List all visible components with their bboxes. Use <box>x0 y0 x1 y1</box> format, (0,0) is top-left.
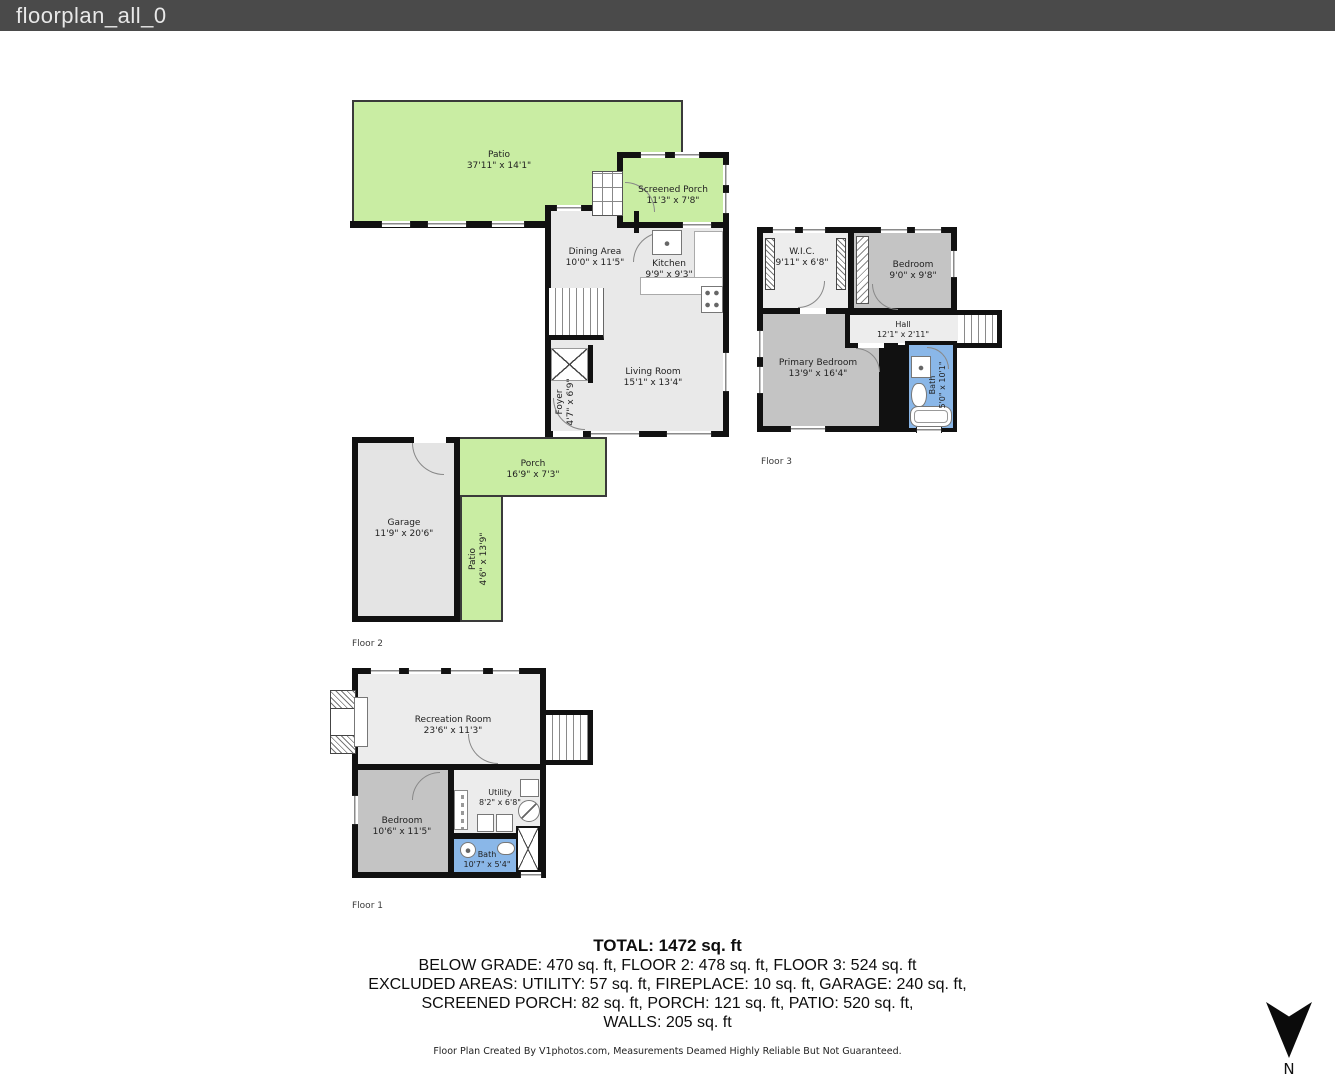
room-name: Screened Porch <box>638 185 708 196</box>
stairs <box>958 310 1002 348</box>
window <box>682 222 712 228</box>
room-label-bath3: Bath 5'0" x 10'1" <box>928 361 948 408</box>
room-name: Patio <box>468 533 479 586</box>
room-dims: 16'9" x 7'3" <box>507 470 560 481</box>
room-label-living: Living Room 15'1" x 13'4" <box>624 367 683 389</box>
room-label-recreation: Recreation Room 23'6" x 11'3" <box>415 715 492 737</box>
room-label-patio: Patio 37'11" x 14'1" <box>467 150 531 172</box>
room-name: Recreation Room <box>415 715 492 726</box>
room-name: Patio <box>467 150 531 161</box>
compass: N <box>1266 1002 1312 1078</box>
floorplan-viewer: floorplan_all_0 <box>0 0 1335 1080</box>
stove-icon <box>701 286 723 313</box>
room-dims: 5'0" x 10'1" <box>938 361 948 408</box>
window <box>914 227 942 233</box>
summary-line: BELOW GRADE: 470 sq. ft, FLOOR 2: 478 sq… <box>0 956 1335 975</box>
window <box>640 152 666 158</box>
window <box>723 352 729 392</box>
window <box>802 227 826 233</box>
room-name: Garage <box>375 518 434 529</box>
washer-icon <box>496 814 513 832</box>
room-name: W.I.C. <box>776 247 829 258</box>
water-heater-icon <box>518 800 540 822</box>
summary-line: SCREENED PORCH: 82 sq. ft, PORCH: 121 sq… <box>0 994 1335 1013</box>
window <box>556 205 582 211</box>
room-name: Living Room <box>624 367 683 378</box>
floor1-tag: Floor 1 <box>352 901 383 911</box>
room-name: Kitchen <box>645 259 692 270</box>
room-name: Utility <box>479 788 521 798</box>
window <box>951 250 957 278</box>
room-dims: 9'9" x 9'3" <box>645 270 692 281</box>
room-dims: 4'7" x 6'9" <box>566 378 577 425</box>
door-opening <box>858 343 884 348</box>
room-dims: 9'0" x 9'8" <box>889 271 936 282</box>
north-arrow-icon <box>1266 1002 1312 1058</box>
toilet-icon <box>911 383 927 407</box>
room-label-bedroom1: Bedroom 10'6" x 11'5" <box>373 816 432 838</box>
window <box>492 668 520 674</box>
closet <box>765 238 775 290</box>
credit-line: Floor Plan Created By V1photos.com, Meas… <box>0 1046 1335 1057</box>
hearth <box>354 697 368 747</box>
room-dims: 37'11" x 14'1" <box>467 161 531 172</box>
window <box>408 668 442 674</box>
dryer-icon <box>520 779 539 797</box>
room-label-bedroom3: Bedroom 9'0" x 9'8" <box>889 260 936 282</box>
room-name: Bedroom <box>373 816 432 827</box>
room-dims: 10'0" x 11'5" <box>566 258 625 269</box>
room-dims: 4'6" x 13'9" <box>479 533 490 586</box>
window <box>674 152 700 158</box>
bathtub-icon <box>910 406 952 427</box>
room-dims: 9'11" x 6'8" <box>776 258 829 269</box>
room-name: Primary Bedroom <box>779 358 857 369</box>
room-label-porch: Porch 16'9" x 7'3" <box>507 459 560 481</box>
shower-icon <box>516 826 540 872</box>
door-opening <box>800 308 826 314</box>
stoop-steps <box>592 171 623 216</box>
stairs <box>549 288 604 340</box>
window <box>723 164 729 186</box>
room-dims: 13'9" x 16'4" <box>779 369 857 380</box>
room-label-screened-porch: Screened Porch 11'3" x 7'8" <box>638 185 708 207</box>
area-summary: TOTAL: 1472 sq. ft BELOW GRADE: 470 sq. … <box>0 936 1335 1032</box>
room-dims: 12'1" x 2'11" <box>877 330 929 340</box>
stairs <box>546 710 593 765</box>
wall <box>588 345 593 383</box>
window <box>450 668 484 674</box>
fireplace-icon <box>330 690 356 709</box>
window <box>723 192 729 214</box>
room-label-primary: Primary Bedroom 13'9" x 16'4" <box>779 358 857 380</box>
room-label-dining: Dining Area 10'0" x 11'5" <box>566 247 625 269</box>
window <box>772 227 796 233</box>
room-dims: 23'6" x 11'3" <box>415 726 492 737</box>
window <box>370 668 400 674</box>
room-dims: 11'3" x 7'8" <box>638 196 708 207</box>
room-label-kitchen: Kitchen 9'9" x 9'3" <box>645 259 692 281</box>
window <box>880 227 908 233</box>
room-dims: 10'7" x 5'4" <box>463 860 510 870</box>
room-name: Bath <box>928 361 938 408</box>
room-label-wic: W.I.C. 9'11" x 6'8" <box>776 247 829 269</box>
window <box>916 427 942 433</box>
room-dims: 10'6" x 11'5" <box>373 827 432 838</box>
floor2-tag: Floor 2 <box>352 639 383 649</box>
summary-line: WALLS: 205 sq. ft <box>0 1013 1335 1032</box>
window <box>666 431 712 437</box>
window <box>491 221 525 227</box>
room-dims: 8'2" x 6'8" <box>479 798 521 808</box>
room-label-foyer: Foyer 4'7" x 6'9" <box>555 378 577 425</box>
room-dims: 11'9" x 20'6" <box>375 529 434 540</box>
window <box>520 872 542 878</box>
closet <box>454 790 468 830</box>
room-name: Foyer <box>555 378 566 425</box>
floor3-tag: Floor 3 <box>761 457 792 467</box>
washer-icon <box>477 814 494 832</box>
window <box>352 795 358 825</box>
total-area: TOTAL: 1472 sq. ft <box>0 936 1335 956</box>
window <box>427 221 467 227</box>
sink-icon <box>652 230 682 255</box>
room-name: Porch <box>507 459 560 470</box>
room-name: Hall <box>877 320 929 330</box>
room-label-hall: Hall 12'1" x 2'11" <box>877 320 929 340</box>
closet <box>836 238 846 290</box>
window <box>757 330 763 358</box>
room-name: Bath <box>463 850 510 860</box>
window <box>790 426 826 432</box>
summary-line: EXCLUDED AREAS: UTILITY: 57 sq. ft, FIRE… <box>0 975 1335 994</box>
room-label-patio-side: Patio 4'6" x 13'9" <box>468 533 490 586</box>
room-label-utility: Utility 8'2" x 6'8" <box>479 788 521 808</box>
room-name: Bedroom <box>889 260 936 271</box>
room-label-garage: Garage 11'9" x 20'6" <box>375 518 434 540</box>
foyer-closet <box>551 348 588 381</box>
fireplace-icon <box>330 708 356 736</box>
room-dims: 15'1" x 13'4" <box>624 378 683 389</box>
room-label-bath1: Bath 10'7" x 5'4" <box>463 850 510 870</box>
fireplace-icon <box>330 735 356 754</box>
closet <box>856 236 869 304</box>
wall <box>634 211 639 233</box>
north-label: N <box>1266 1060 1312 1078</box>
room-name: Dining Area <box>566 247 625 258</box>
window <box>757 366 763 394</box>
window <box>381 221 411 227</box>
floorplan-canvas: Patio 37'11" x 14'1" Screened Porch 11'3… <box>0 0 1335 1080</box>
